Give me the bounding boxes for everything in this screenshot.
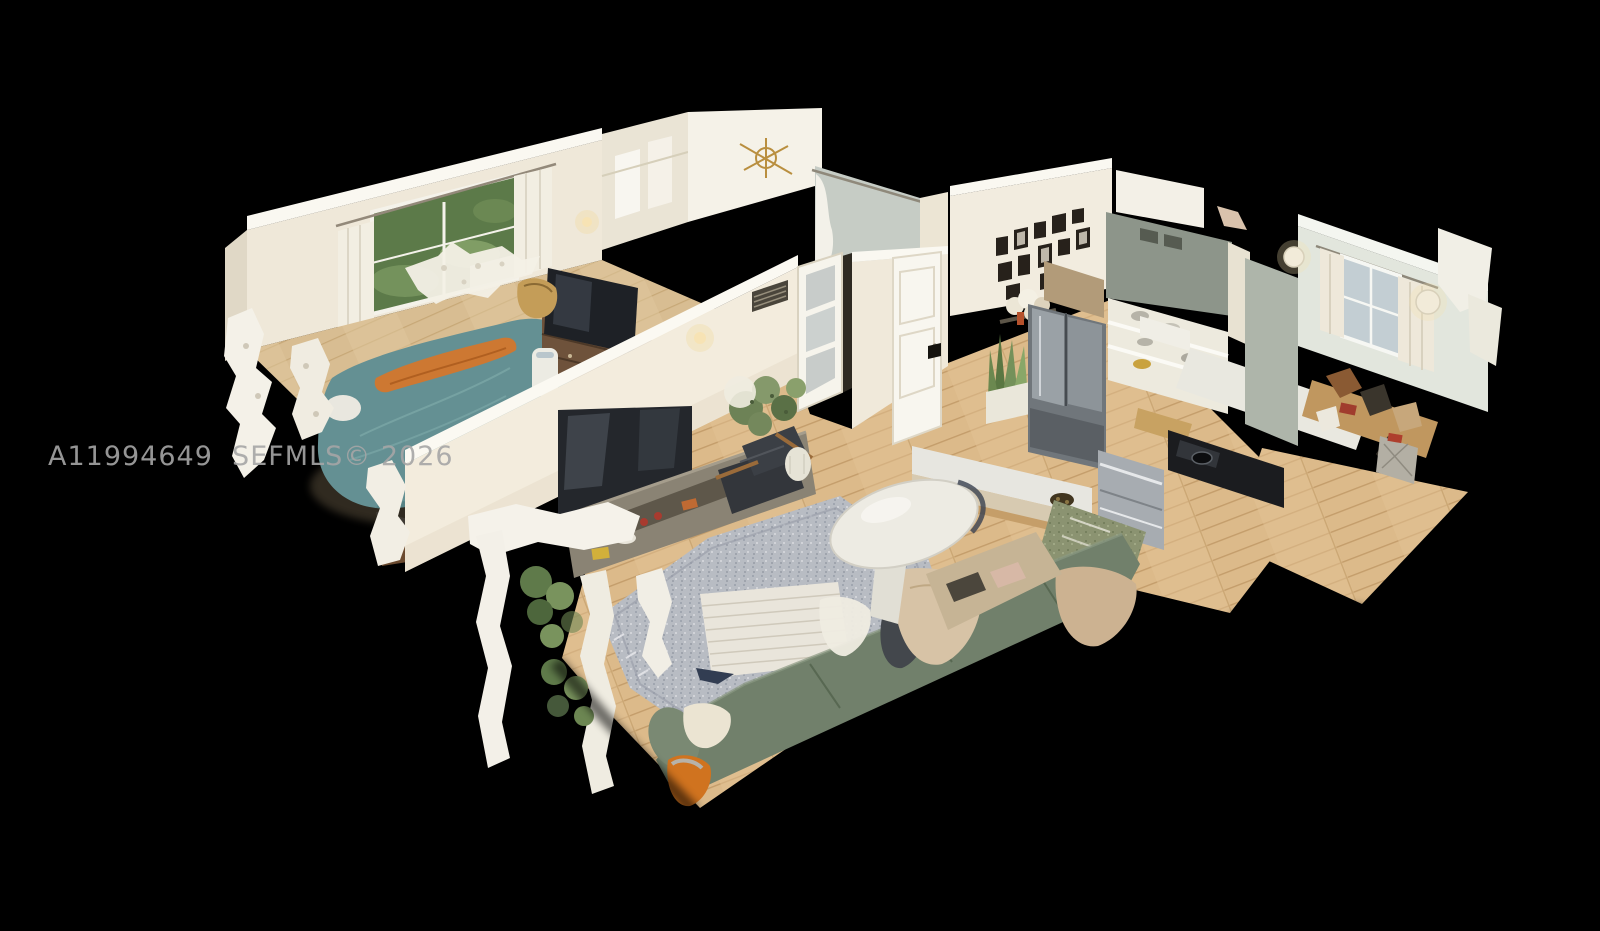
ceramic-side-pot (785, 447, 811, 481)
front-door (893, 252, 941, 444)
wall-sconce-2 (1416, 290, 1440, 314)
dollhouse-scan: A11994649 SEFMLS© 2026 (40, 16, 1600, 915)
bedroom-sconce (582, 217, 592, 227)
entry-return-wall (852, 246, 948, 444)
bedroom2-window (1342, 256, 1400, 356)
yellow-box (591, 547, 609, 560)
hall-french-door (798, 253, 852, 411)
bedroom2-partition-wall (1245, 258, 1298, 446)
yellow-bowl (1133, 359, 1151, 369)
orange-bottle (1017, 312, 1024, 325)
closet-interior-light (615, 149, 640, 219)
living-sconce (694, 332, 706, 344)
mls-watermark: A11994649 SEFMLS© 2026 (48, 441, 454, 472)
listing-photo-3d-dollhouse: A11994649 SEFMLS© 2026 (40, 16, 1600, 915)
refrigerator (1028, 304, 1106, 470)
wall-sconce-1 (1284, 247, 1304, 267)
